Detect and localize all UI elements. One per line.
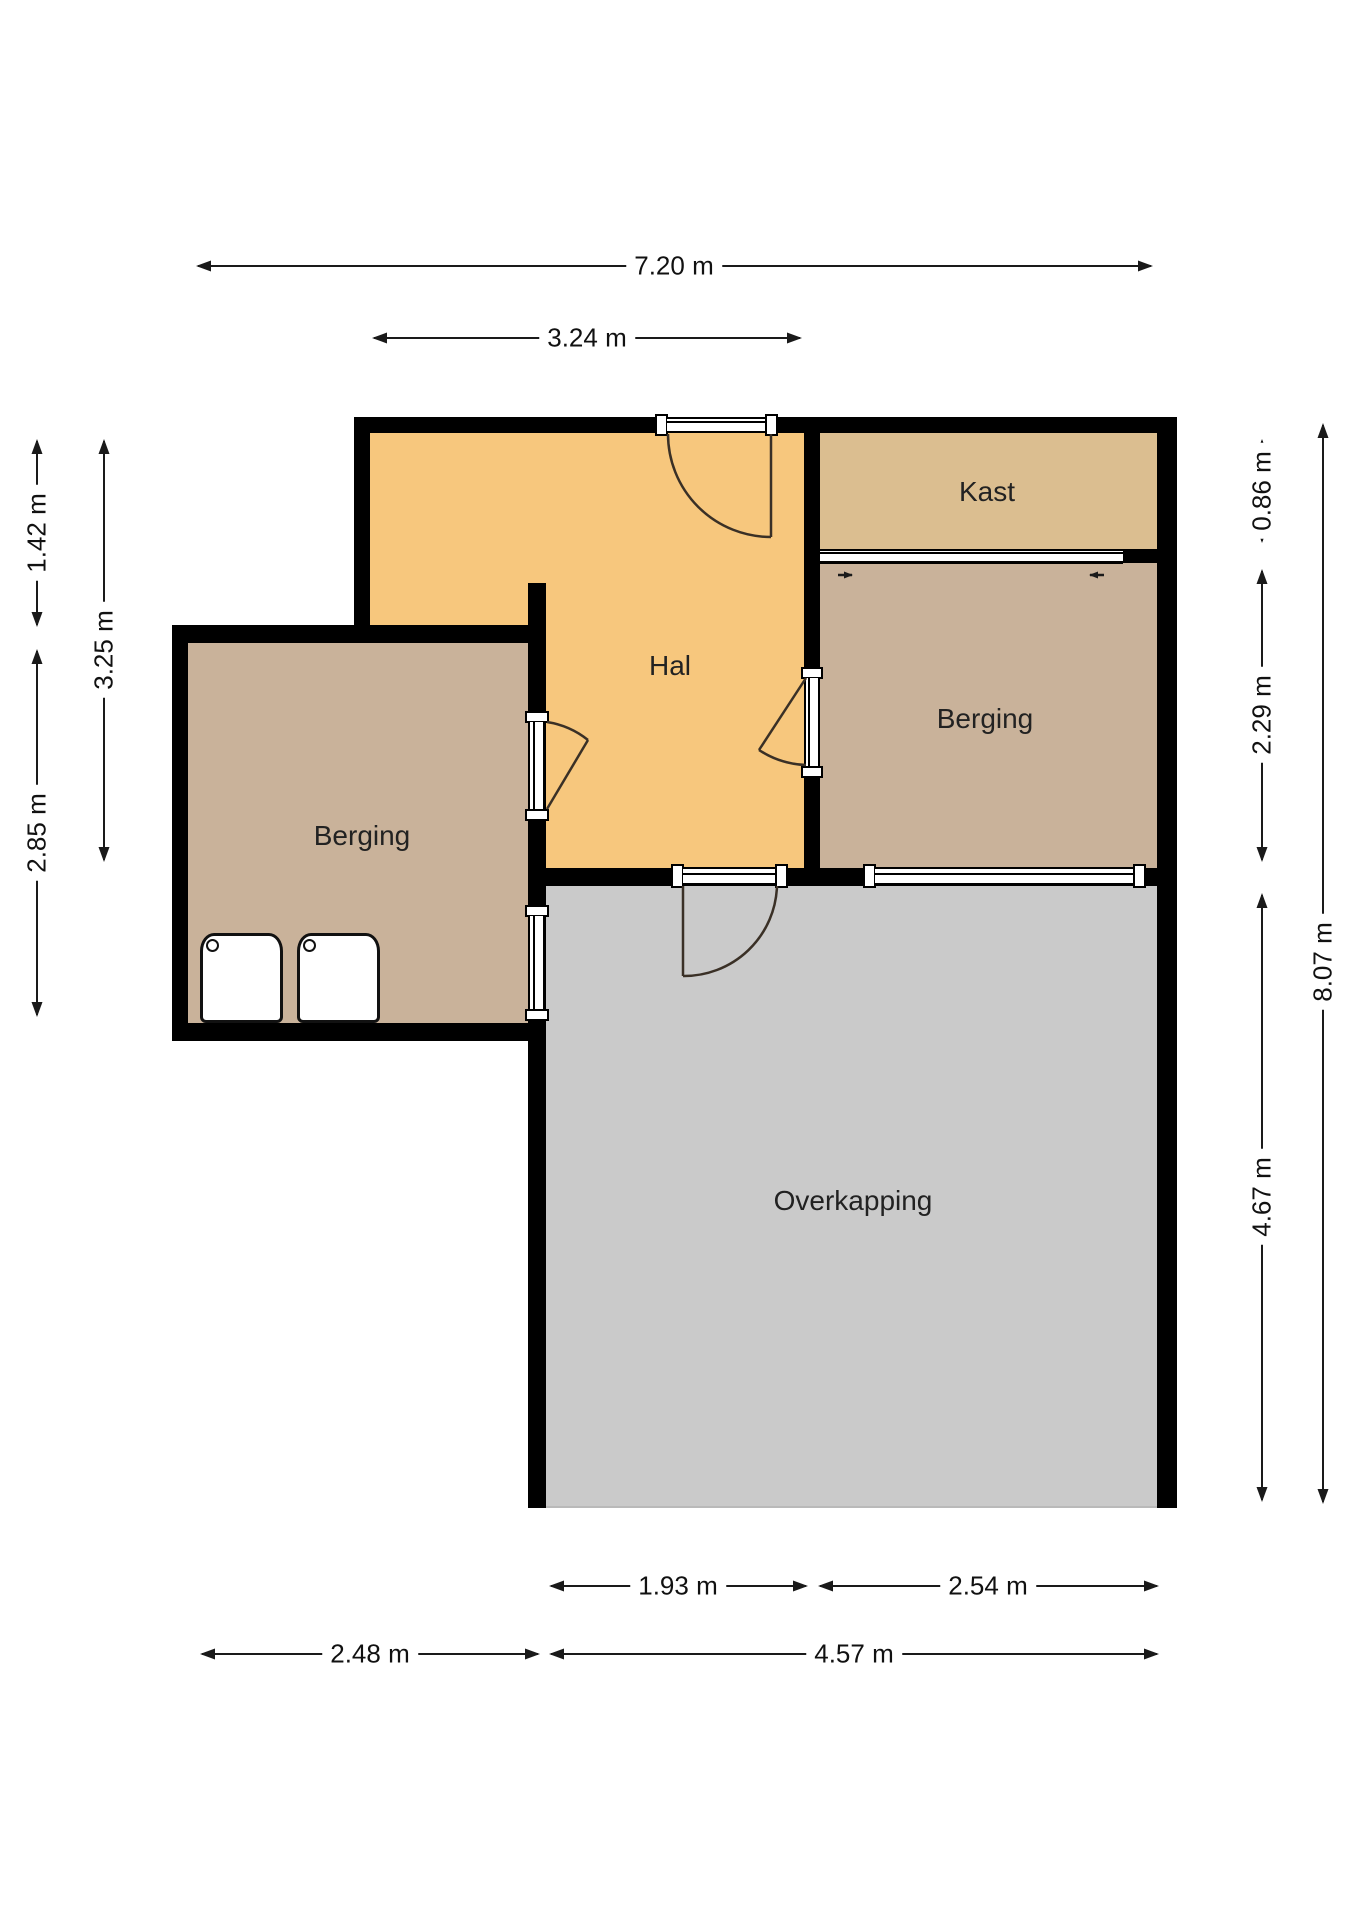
dim-right-kast-depth: 0.86 m bbox=[1246, 443, 1279, 539]
berging-left-window-jamb-bottom bbox=[525, 1009, 549, 1021]
dim-bottom-berging-width: 2.48 m bbox=[322, 1638, 418, 1671]
entrance-door-glass bbox=[667, 417, 766, 433]
sliding-door-right-stub bbox=[1123, 549, 1159, 563]
sliding-door-kast-berging bbox=[820, 549, 1123, 563]
berging-left-door-glass bbox=[528, 722, 546, 810]
hal-berging-divider-upper bbox=[528, 583, 546, 711]
dim-bottom-overkapping-width: 4.57 m bbox=[806, 1638, 902, 1671]
dim-left-top-offset: 1.42 m bbox=[21, 485, 54, 581]
dim-left-hal-height: 3.25 m bbox=[88, 602, 121, 698]
dim-left-berging-height: 2.85 m bbox=[21, 785, 54, 881]
hal-left-outer-wall bbox=[354, 417, 370, 643]
hal-berging-right-door-glass bbox=[804, 678, 820, 767]
room-label-berging-left: Berging bbox=[314, 820, 411, 852]
storage-container-2 bbox=[297, 933, 380, 1023]
berging-overkapping-divider-top bbox=[528, 886, 546, 906]
hal-floor-left-strip bbox=[370, 583, 528, 625]
room-label-kast: Kast bbox=[959, 476, 1015, 508]
hal-kast-divider-upper bbox=[804, 433, 820, 667]
hal-overkapping-door-jamb-right bbox=[775, 864, 788, 888]
entrance-door-jamb-right bbox=[765, 414, 778, 436]
top-wall-left bbox=[354, 417, 657, 433]
storage-container-1 bbox=[200, 933, 283, 1023]
room-label-berging-right: Berging bbox=[937, 703, 1034, 735]
berging-right-window-jamb-right bbox=[1133, 864, 1146, 888]
berging-left-left-wall bbox=[172, 625, 188, 1041]
floor-plan: 7.20 m 3.24 m 1.42 m 3.25 m 2.85 m 0.86 … bbox=[0, 0, 1358, 1920]
hal-floor-main bbox=[546, 583, 804, 868]
dim-bottom-overkapping-right: 2.54 m bbox=[940, 1570, 1036, 1603]
right-outer-wall bbox=[1157, 417, 1177, 1508]
dim-top-total: 7.20 m bbox=[626, 250, 722, 283]
bottom-wall-left bbox=[528, 868, 675, 886]
dim-right-overkapping-height: 4.67 m bbox=[1246, 1149, 1279, 1245]
dim-right-total-height: 8.07 m bbox=[1307, 914, 1340, 1010]
hal-berging-right-door-jamb-bottom bbox=[801, 766, 823, 778]
berging-left-top-wall bbox=[172, 625, 546, 643]
overkapping-left-wall bbox=[528, 1020, 546, 1508]
dim-right-berging-height: 2.29 m bbox=[1246, 667, 1279, 763]
berging-right-window bbox=[875, 867, 1134, 886]
hal-floor-upper bbox=[370, 433, 804, 583]
room-label-overkapping: Overkapping bbox=[774, 1185, 933, 1217]
berging-left-door-jamb-bottom bbox=[525, 809, 549, 821]
dim-top-hal-width: 3.24 m bbox=[539, 322, 635, 355]
top-wall-right bbox=[777, 417, 1177, 433]
room-label-hal: Hal bbox=[649, 650, 691, 682]
bottom-wall-mid bbox=[787, 868, 865, 886]
dim-bottom-overkapping-left: 1.93 m bbox=[630, 1570, 726, 1603]
hal-overkapping-door-glass bbox=[683, 867, 776, 886]
berging-left-bottom-wall bbox=[172, 1023, 546, 1041]
berging-left-window bbox=[528, 916, 546, 1010]
